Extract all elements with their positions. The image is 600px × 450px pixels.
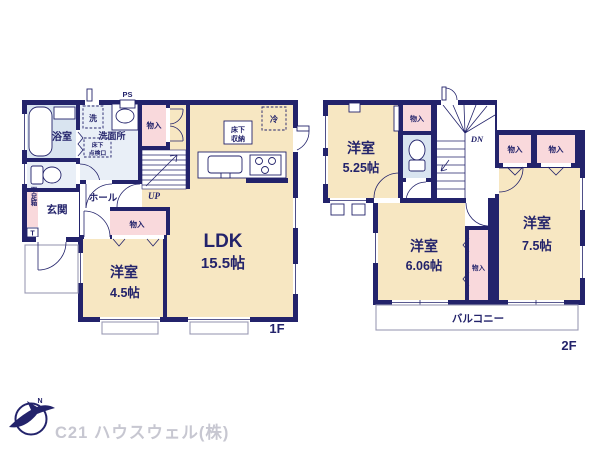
stairs-2f [437,105,495,198]
window-bay-2 [190,322,248,334]
label-closet-d: 物入 [472,263,486,272]
label-western606-size: 6.06帖 [406,258,443,273]
kitchen-counter [198,152,288,183]
closet-a-door [394,106,399,131]
label-ps: PS [122,90,132,99]
ldk-side-door [293,126,309,152]
label-western75: 洋室 [523,215,551,231]
label-closet-c: 物入 [549,144,564,154]
label-1f: 1F [269,321,284,336]
stairs-top-door [441,87,458,105]
label-western525: 洋室 [347,140,375,156]
label-bath: 浴室 [52,130,72,143]
entrance-porch [25,245,78,293]
label-western75-size: 7.5帖 [522,238,552,253]
floor-2f-plan: 洋室 5.25帖 物入 DN 物入 物入 洋室 7.5帖 洋室 6.06帖 物入… [323,87,585,353]
label-closet-top: 物入 [147,120,162,130]
label-western45: 洋室 [110,264,138,280]
label-closet-b: 物入 [508,144,523,154]
toilet-fixture-1f [31,166,61,184]
label-storage-2: 収納 [231,134,245,143]
floor-1f-plan: PS 浴室 洗 洗面所 床下 点検口 ホール 玄関 下足箱 T 物入 UP 物入… [22,89,309,336]
label-western525-size: 5.25帖 [343,160,380,175]
label-washroom: 洗面所 [98,130,125,141]
company-logo: N C21 ハウスウェル(株) [9,398,229,442]
label-closet-a: 物入 [410,114,424,123]
floorplan-canvas: PS 浴室 洗 洗面所 床下 点検口 ホール 玄関 下足箱 T 物入 UP 物入… [0,0,600,450]
label-balcony: バルコニー [452,313,504,325]
label-inspection-2: 点検口 [89,149,107,157]
label-inspection-1: 床下 [92,141,104,149]
room-ldk-nook3 [186,207,190,235]
floorplan-page: PS 浴室 洗 洗面所 床下 点検口 ホール 玄関 下足箱 T 物入 UP 物入… [0,0,600,450]
company-name: C21 ハウスウェル(株) [55,422,229,442]
room-ldk-nook-top [170,105,186,150]
room-ldk-lower [167,235,193,317]
room-western-75 [499,168,580,300]
label-storage-1: 床下 [231,125,245,134]
label-entrance: 玄関 [47,203,68,216]
label-fridge: 冷 [270,114,278,124]
label-hall: ホール [89,193,118,204]
toilet-fixture-2f [409,140,425,171]
label-up: UP [148,191,160,201]
label-shoe-box-t: T [30,231,35,238]
label-closet-mid: 物入 [130,219,145,229]
label-2f: 2F [561,338,576,353]
label-ldk-size: 15.5帖 [201,254,245,272]
window-bay-1 [102,322,158,334]
label-dn: DN [470,134,484,144]
label-laundry: 洗 [89,113,97,123]
label-western606: 洋室 [410,238,438,254]
label-ldk: LDK [203,231,242,252]
pipe-space-box [120,100,135,108]
compass-north-label: N [37,398,42,405]
label-western45-size: 4.5帖 [110,285,140,300]
exterior-door-top [85,89,99,105]
